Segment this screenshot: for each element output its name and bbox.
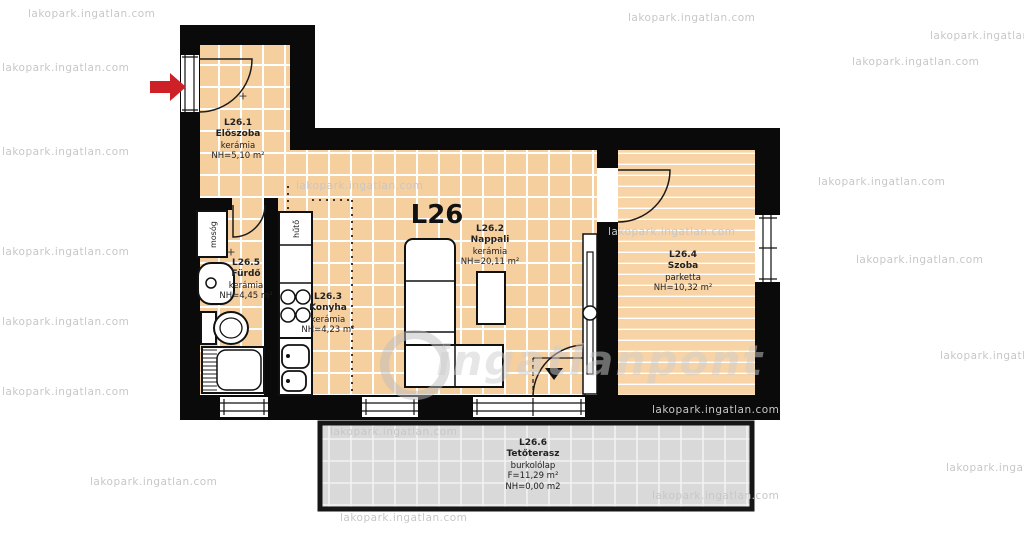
toilet xyxy=(201,312,248,344)
room-label-nappali: L26.2 Nappali kerámia NH=20,11 m² xyxy=(461,224,520,268)
watermark-text: lakopark.ingatlan.com xyxy=(930,30,1024,42)
watermark-text: lakopark.ingatlan.com xyxy=(330,426,457,438)
room-id: L26.2 xyxy=(461,224,520,235)
watermark-text: lakopark.ingatlan.com xyxy=(818,176,945,188)
room-id: L26.5 xyxy=(219,258,272,269)
kitchen-sink xyxy=(279,338,312,395)
room-label-tetoterasz: L26.6 Tetőterasz burkolólap F=11,29 m² N… xyxy=(505,438,560,492)
main-top-wall xyxy=(290,128,780,150)
washing-machine: mosóg xyxy=(197,211,227,257)
room-floor-type: parketta xyxy=(654,273,713,284)
watermark-big-text: ingatlanpont xyxy=(436,336,764,385)
right-wall-upper xyxy=(755,128,780,215)
terrace-door-opening xyxy=(473,397,585,417)
watermark-text: lakopark.ingatlan.com xyxy=(2,62,129,74)
hall-bathroom-wall xyxy=(200,198,232,210)
living-room-window xyxy=(362,397,418,417)
room-floor-type: kerámia xyxy=(211,141,264,152)
room-name: Konyha xyxy=(301,303,354,314)
room-floor-type: kerámia xyxy=(219,281,272,292)
coffee-table xyxy=(477,272,505,324)
watermark-text: lakopark.ingatlan.com xyxy=(2,246,129,258)
room-name: Tetőterasz xyxy=(505,449,560,460)
room-label-konyha: L26.3 Konyha kerámia NH=4,23 m² xyxy=(301,292,354,336)
watermark-text: lakopark.ingatlan.com xyxy=(652,490,779,502)
room-id: L26.4 xyxy=(654,250,713,261)
room-area: NH=0,00 m2 xyxy=(505,482,560,493)
watermark-text: lakopark.ingatlan.com xyxy=(652,404,779,416)
watermark-text: lakopark.ingatlan.com xyxy=(852,56,979,68)
room-id: L26.6 xyxy=(505,438,560,449)
room-label-furdo: L26.5 Fürdő kerámia NH=4,45 m² xyxy=(219,258,272,302)
watermark-text: lakopark.ingatlan.com xyxy=(2,146,129,158)
plus-mark: + xyxy=(238,90,247,103)
watermark-text: lakopark.ingatlan.com xyxy=(946,462,1024,474)
room-area-f: F=11,29 m² xyxy=(505,471,560,482)
room-area: NH=4,23 m² xyxy=(301,325,354,336)
bedroom-window xyxy=(757,215,779,282)
bathtub xyxy=(202,347,264,393)
entrance-door-frame xyxy=(181,55,199,112)
fridge-label: hűtő xyxy=(292,220,301,238)
room-label-eloszoba: L26.1 Előszoba kerámia NH=5,10 m² xyxy=(211,118,264,162)
watermark-text: lakopark.ingatlan.com xyxy=(940,350,1024,362)
room-area: NH=4,45 m² xyxy=(219,291,272,302)
watermark-text: lakopark.ingatlan.com xyxy=(856,254,983,266)
washing-machine-label: mosóg xyxy=(208,221,218,248)
room-area: NH=5,10 m² xyxy=(211,151,264,162)
room-label-szoba: L26.4 Szoba parketta NH=10,32 m² xyxy=(654,250,713,294)
watermark-text: lakopark.ingatlan.com xyxy=(296,180,423,192)
room-name: Fürdő xyxy=(219,269,272,280)
watermark-text: lakopark.ingatlan.com xyxy=(2,316,129,328)
room-floor-type: kerámia xyxy=(461,247,520,258)
floor-plan-canvas: mosóg hűtő xyxy=(0,0,1024,540)
bedroom-wall-upper xyxy=(597,150,618,168)
plus-mark: + xyxy=(226,246,235,259)
bathroom-window xyxy=(220,397,268,417)
room-floor-type: kerámia xyxy=(301,315,354,326)
room-id: L26.1 xyxy=(211,118,264,129)
room-id: L26.3 xyxy=(301,292,354,303)
room-name: Nappali xyxy=(461,235,520,246)
watermark-text: lakopark.ingatlan.com xyxy=(2,386,129,398)
watermark-text: lakopark.ingatlan.com xyxy=(340,512,467,524)
room-area: NH=10,32 m² xyxy=(654,283,713,294)
room-name: Előszoba xyxy=(211,129,264,140)
watermark-text: lakopark.ingatlan.com xyxy=(628,12,755,24)
watermark-text: lakopark.ingatlan.com xyxy=(608,226,735,238)
room-floor-type: burkolólap xyxy=(505,461,560,472)
room-name: Szoba xyxy=(654,261,713,272)
room-area: NH=20,11 m² xyxy=(461,257,520,268)
unit-label: L26 xyxy=(411,200,464,230)
watermark-text: lakopark.ingatlan.com xyxy=(28,8,155,20)
watermark-text: lakopark.ingatlan.com xyxy=(90,476,217,488)
